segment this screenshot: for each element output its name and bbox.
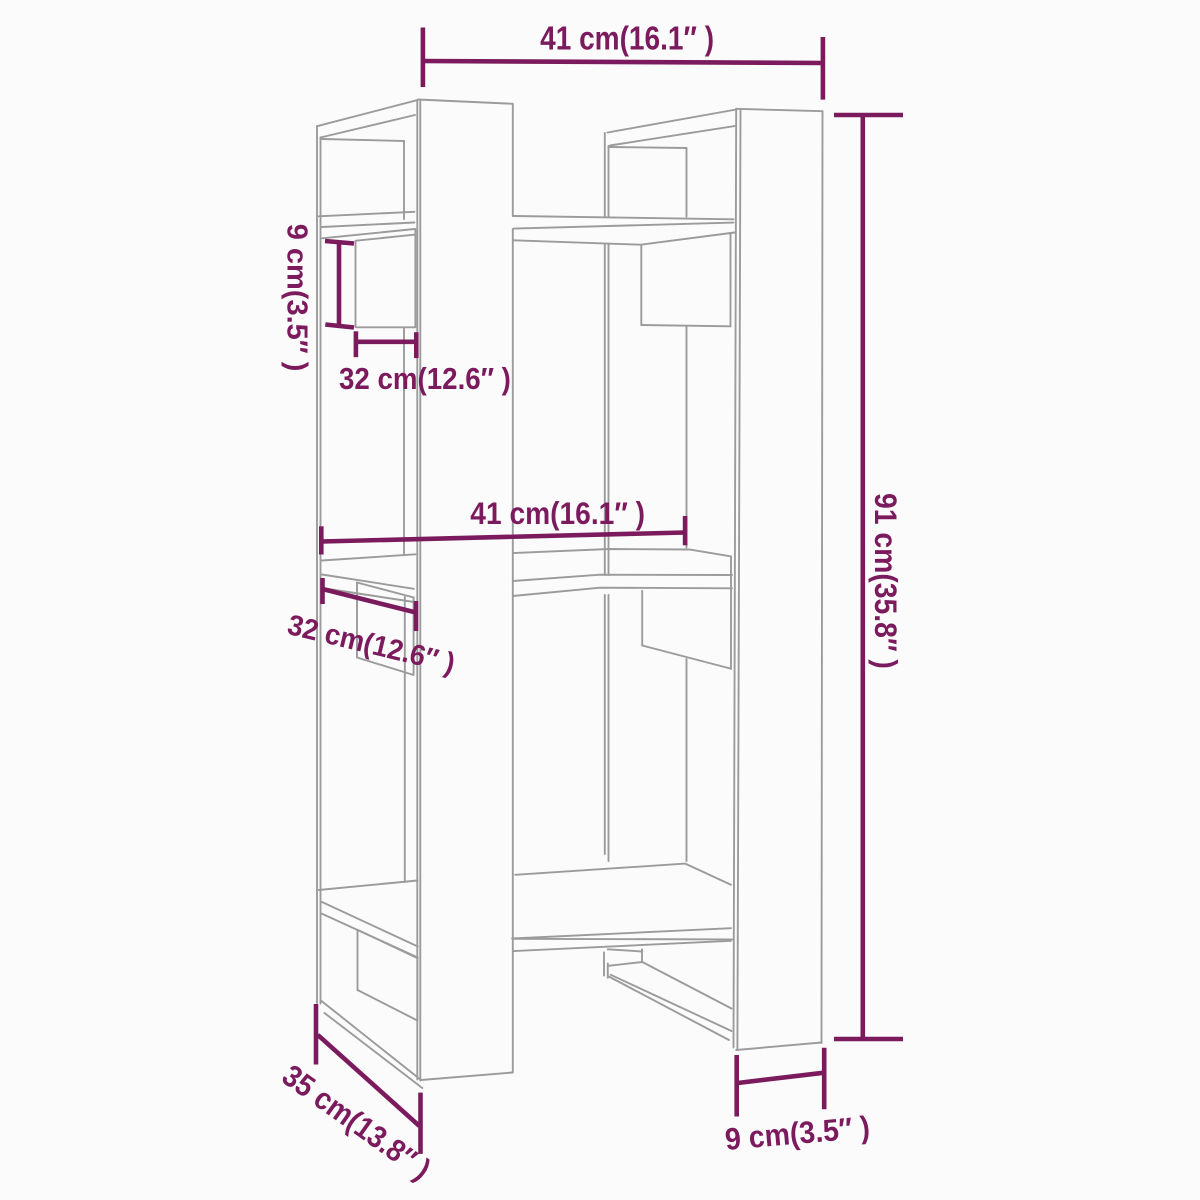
svg-text:91 cm(35.8″ ): 91 cm(35.8″ ) xyxy=(867,493,902,669)
svg-text:32 cm(12.6″ ): 32 cm(12.6″ ) xyxy=(339,362,511,397)
svg-text:41 cm(16.1″ ): 41 cm(16.1″ ) xyxy=(540,21,714,58)
svg-text:41 cm(16.1″ ): 41 cm(16.1″ ) xyxy=(470,497,645,532)
svg-text:9 cm(3.5″ ): 9 cm(3.5″ ) xyxy=(280,224,312,372)
